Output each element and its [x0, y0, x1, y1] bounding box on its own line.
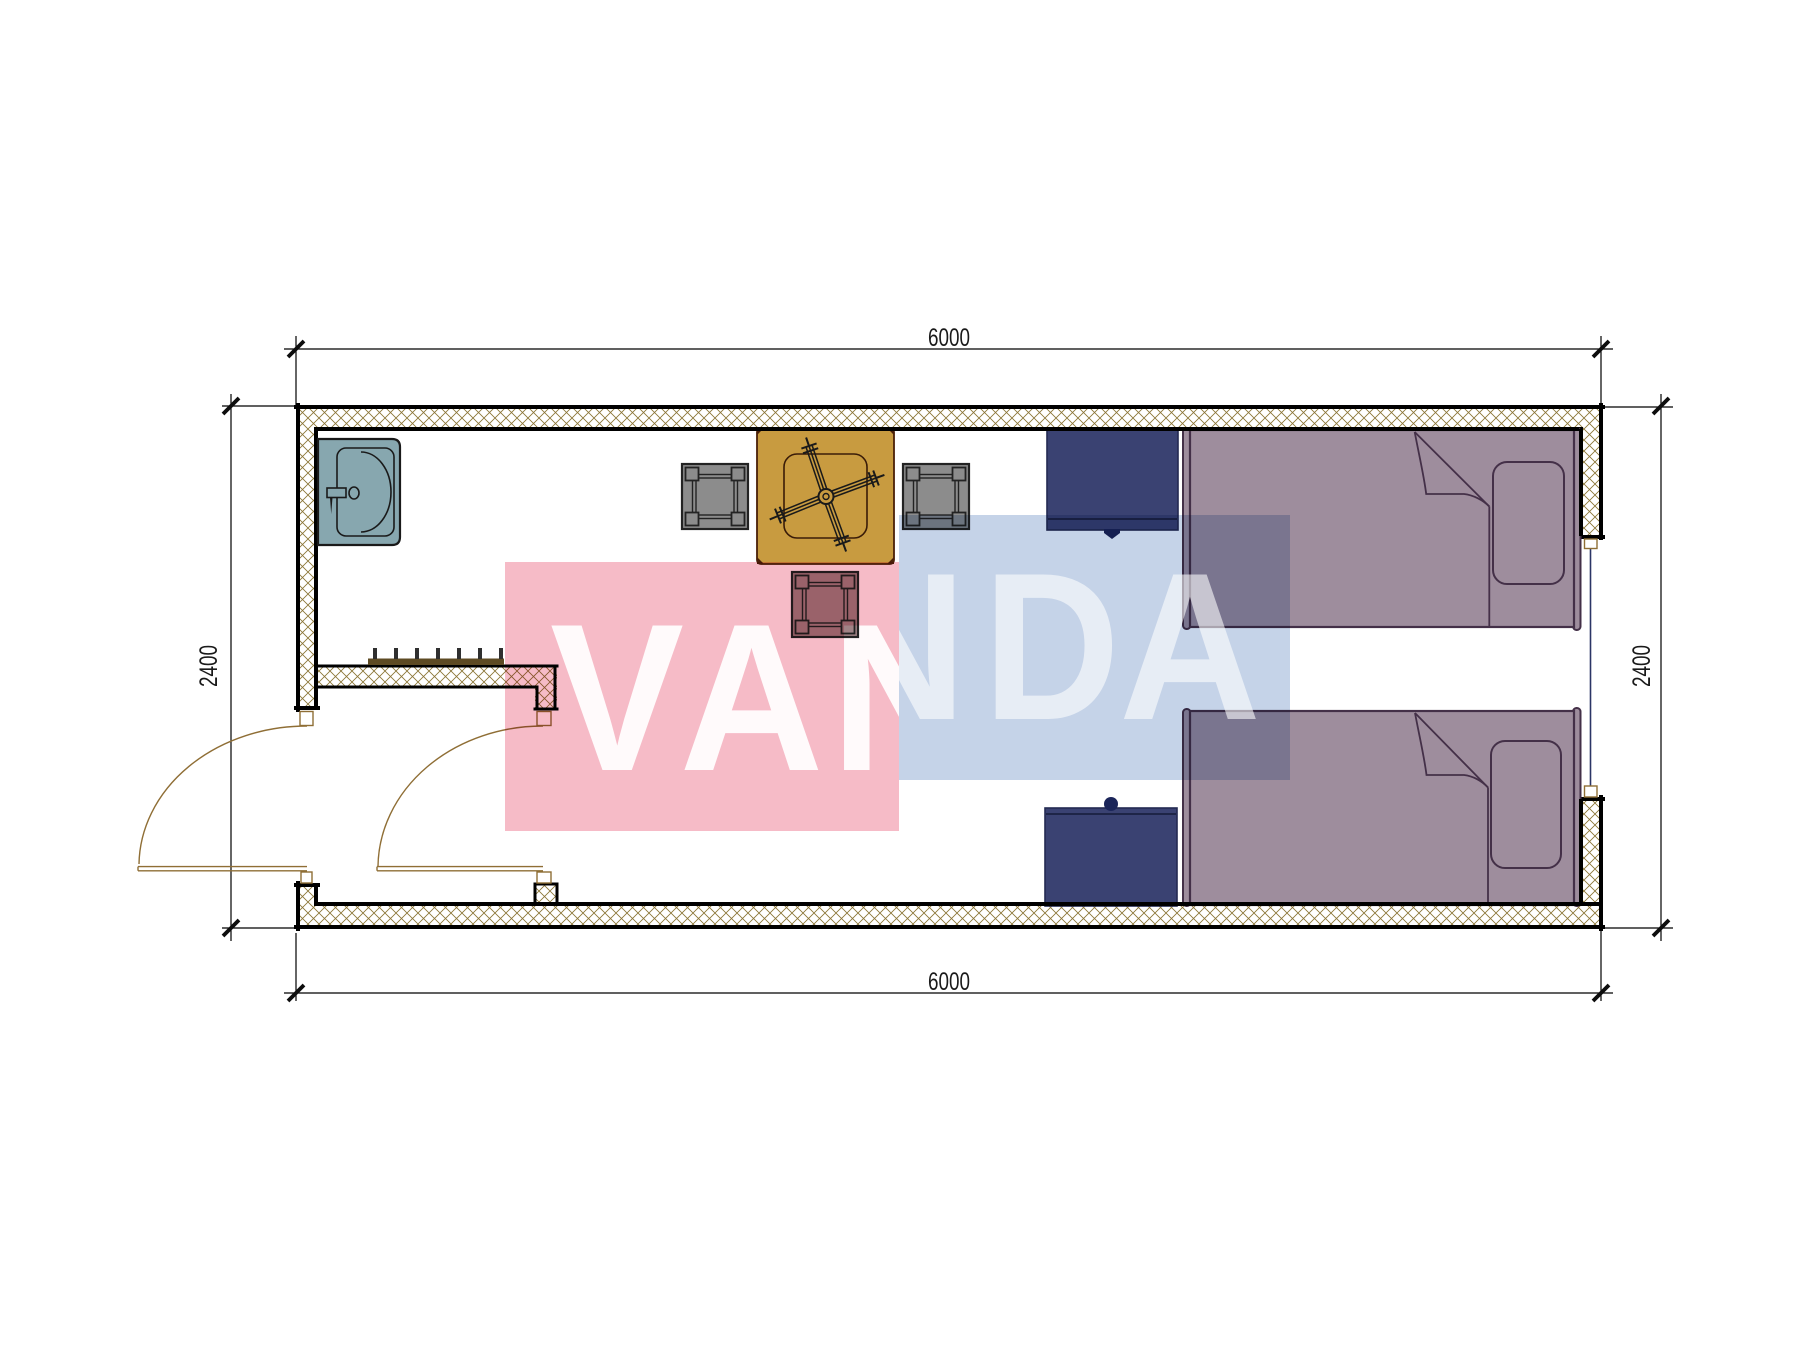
svg-text:2400: 2400 — [195, 645, 223, 687]
svg-text:A: A — [1119, 529, 1261, 764]
svg-text:6000: 6000 — [928, 324, 970, 352]
svg-text:6000: 6000 — [928, 968, 970, 996]
svg-text:D: D — [983, 529, 1120, 764]
svg-text:2400: 2400 — [1628, 645, 1656, 687]
svg-text:V: V — [550, 580, 684, 815]
